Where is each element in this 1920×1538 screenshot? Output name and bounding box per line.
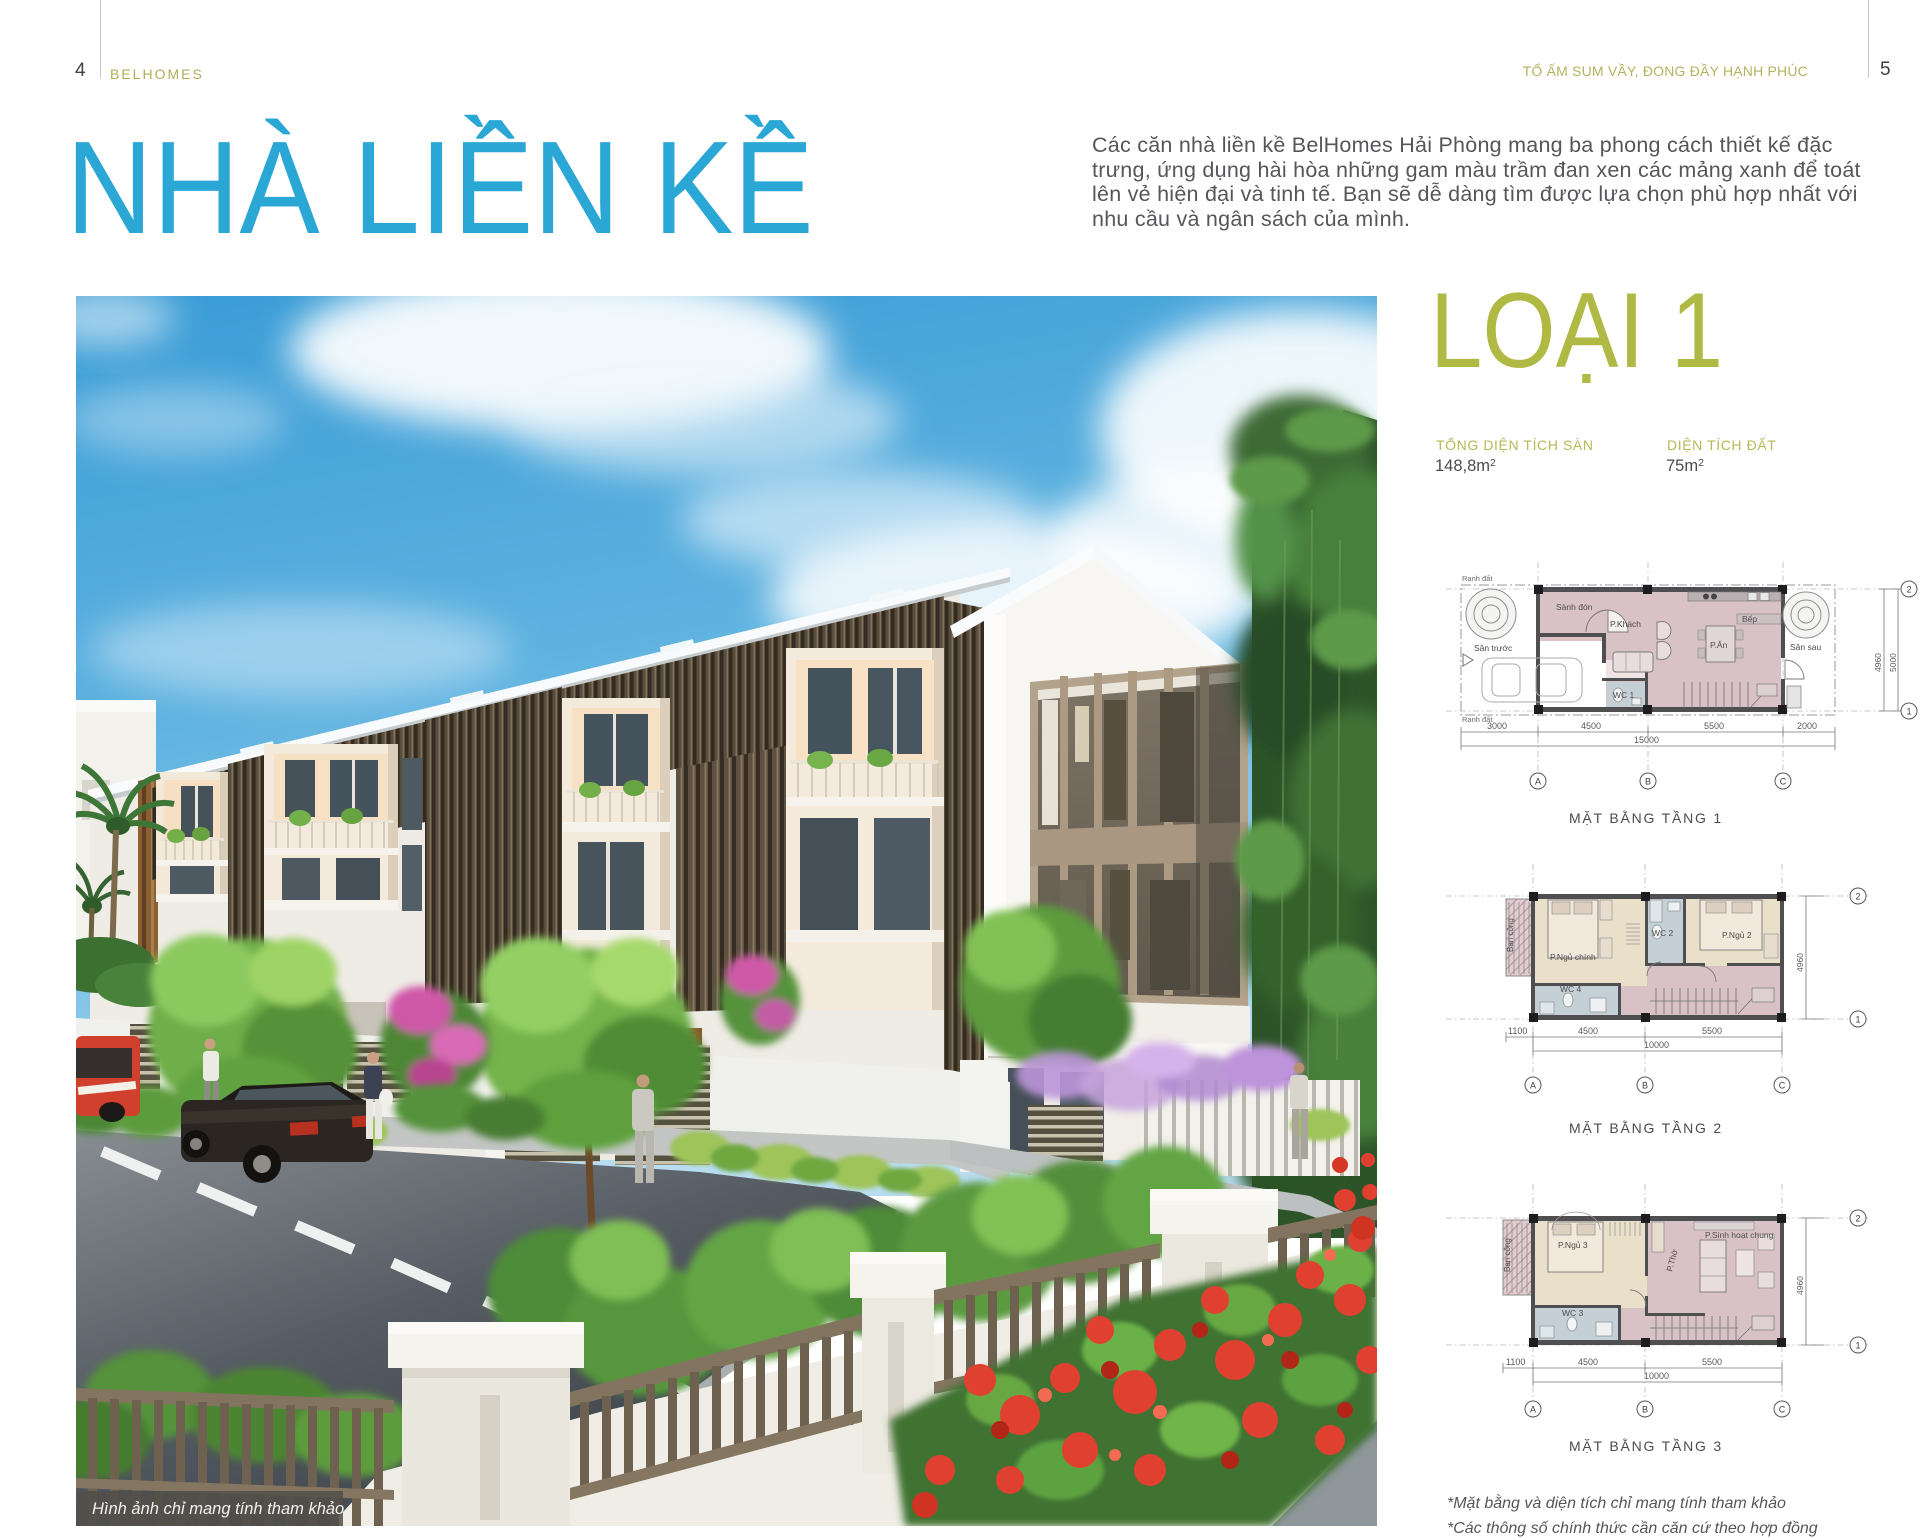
svg-text:P.Ăn: P.Ăn: [1710, 640, 1728, 650]
svg-text:P.Sinh hoạt chung: P.Sinh hoạt chung: [1705, 1230, 1774, 1240]
svg-text:10000: 10000: [1644, 1371, 1669, 1381]
svg-text:2: 2: [1855, 1214, 1860, 1224]
svg-text:A: A: [1535, 777, 1541, 787]
svg-text:2: 2: [1906, 585, 1911, 595]
svg-text:1100: 1100: [1508, 1026, 1527, 1036]
svg-text:C: C: [1779, 1405, 1786, 1415]
svg-text:1: 1: [1906, 707, 1911, 717]
svg-text:15000: 15000: [1634, 735, 1659, 745]
svg-text:Sành đón: Sành đón: [1556, 602, 1593, 612]
svg-text:4500: 4500: [1578, 1357, 1598, 1367]
svg-text:10000: 10000: [1644, 1040, 1669, 1050]
svg-text:Bếp: Bếp: [1742, 614, 1757, 624]
svg-text:1: 1: [1855, 1015, 1860, 1025]
svg-text:P.Ngủ chính: P.Ngủ chính: [1550, 952, 1596, 962]
svg-text:WC 1: WC 1: [1613, 690, 1635, 700]
svg-text:A: A: [1530, 1081, 1536, 1091]
svg-text:4960: 4960: [1873, 653, 1883, 672]
svg-text:5500: 5500: [1704, 721, 1724, 731]
svg-text:P.Ngủ 2: P.Ngủ 2: [1722, 930, 1752, 940]
svg-text:3000: 3000: [1487, 721, 1507, 731]
svg-text:5500: 5500: [1702, 1357, 1722, 1367]
svg-text:4960: 4960: [1795, 953, 1805, 972]
svg-text:5000: 5000: [1888, 653, 1898, 672]
svg-text:WC 2: WC 2: [1652, 928, 1674, 938]
svg-text:Ranh đất: Ranh đất: [1462, 574, 1493, 583]
svg-text:B: B: [1642, 1081, 1648, 1091]
svg-text:WC 4: WC 4: [1560, 984, 1582, 994]
svg-text:B: B: [1645, 777, 1651, 787]
svg-text:4960: 4960: [1795, 1276, 1805, 1295]
svg-text:4500: 4500: [1581, 721, 1601, 731]
svg-text:C: C: [1780, 777, 1787, 787]
svg-text:4500: 4500: [1578, 1026, 1598, 1036]
svg-text:P.Ngủ 3: P.Ngủ 3: [1558, 1240, 1588, 1250]
svg-text:1: 1: [1855, 1341, 1860, 1351]
svg-text:Sân trước: Sân trước: [1474, 643, 1513, 653]
svg-text:P.Khách: P.Khách: [1610, 619, 1641, 629]
svg-text:2000: 2000: [1797, 721, 1817, 731]
svg-text:1100: 1100: [1506, 1357, 1525, 1367]
svg-text:C: C: [1779, 1081, 1786, 1091]
svg-text:5500: 5500: [1702, 1026, 1722, 1036]
svg-text:Ban công: Ban công: [1503, 1238, 1512, 1272]
svg-text:WC 3: WC 3: [1562, 1308, 1584, 1318]
svg-text:2: 2: [1855, 892, 1860, 902]
svg-text:A: A: [1530, 1405, 1536, 1415]
svg-text:B: B: [1642, 1405, 1648, 1415]
svg-text:Hình ảnh chỉ mang tính tham kh: Hình ảnh chỉ mang tính tham khảo: [92, 1500, 344, 1518]
svg-text:Ban công: Ban công: [1506, 918, 1515, 952]
svg-text:Sân sau: Sân sau: [1790, 642, 1821, 652]
